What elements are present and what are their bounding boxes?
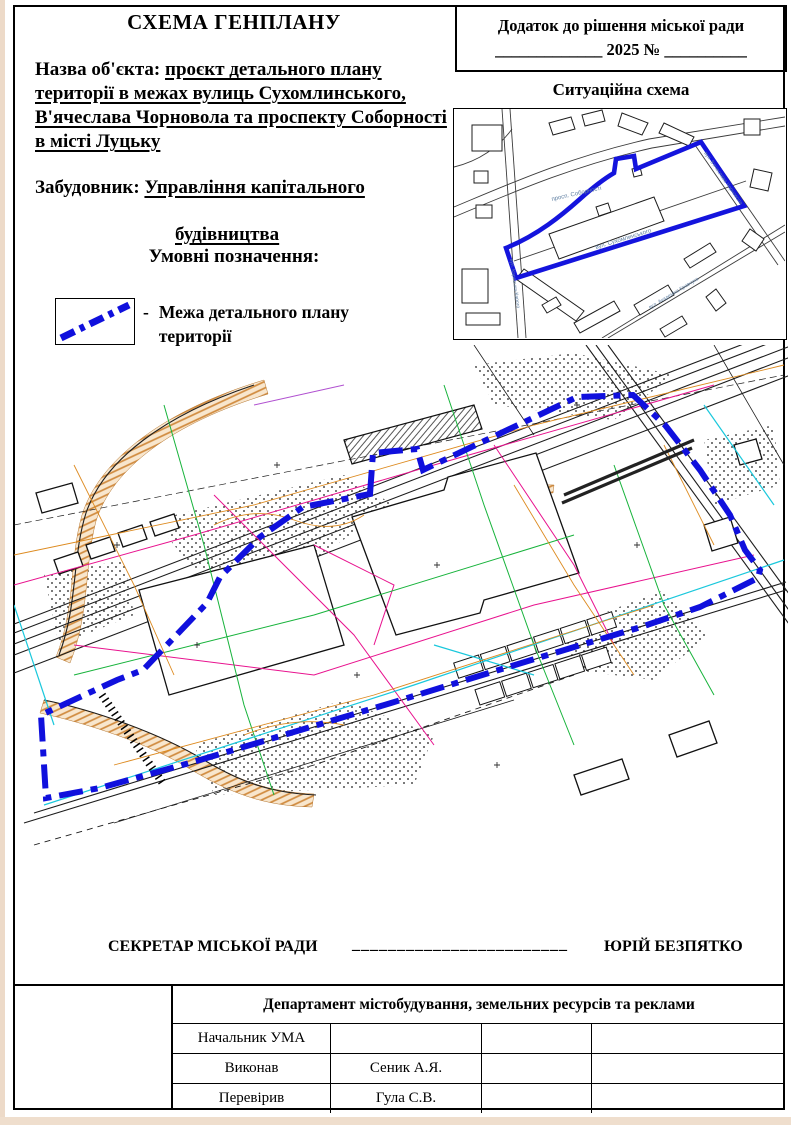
signature-line: ________________________ <box>352 936 568 954</box>
legend-swatch <box>55 298 135 345</box>
empty-cell <box>482 1084 592 1113</box>
scan-edge-left <box>0 0 5 1125</box>
name-cell: Сеник А.Я. <box>331 1054 482 1083</box>
name-cell <box>331 1024 482 1053</box>
annex-line-1: Додаток до рішення міської ради <box>457 14 785 38</box>
role-cell: Начальник УМА <box>173 1024 331 1053</box>
map-dark-road-bars <box>562 440 694 503</box>
annex-line-2: _____________ 2025 № __________ <box>457 38 785 62</box>
annex-note-box: Додаток до рішення міської ради ________… <box>455 5 787 72</box>
approval-table: Департамент містобудування, земельних ре… <box>13 984 785 1110</box>
legend-item: - Межа детального плану території <box>143 301 403 348</box>
developer-paragraph: Забудовник: Управління капітального <box>35 176 457 200</box>
name-cell: Гула С.В. <box>331 1084 482 1113</box>
empty-cell <box>592 1084 785 1113</box>
main-map-drawing <box>14 345 788 917</box>
situation-map-box: просп. Соборності вул. Сухомлинського ву… <box>453 108 787 340</box>
object-name-paragraph: Назва об'єкта: проєкт детального плану т… <box>35 58 457 155</box>
role-cell: Перевірив <box>173 1084 331 1113</box>
table-row: Начальник УМА <box>173 1024 785 1054</box>
situation-map-drawing: просп. Соборності вул. Сухомлинського ву… <box>454 109 785 338</box>
street-label-karpenka-karoho: вул. Карпенка-Карого <box>508 258 521 308</box>
situation-map-title: Ситуаційна схема <box>455 80 787 100</box>
legend-item-label: Межа детального плану території <box>159 301 403 348</box>
department-header: Департамент містобудування, земельних ре… <box>173 986 785 1024</box>
boundary-line-sample <box>56 299 133 343</box>
legend-title: Умовні позначення: <box>14 246 454 268</box>
approval-table-empty-cell <box>13 986 173 1110</box>
signature-name: ЮРІЙ БЕЗПЯТКО <box>604 938 743 956</box>
signature-role: СЕКРЕТАР МІСЬКОЇ РАДИ <box>108 938 318 956</box>
empty-cell <box>592 1024 785 1053</box>
empty-cell <box>592 1054 785 1083</box>
sitmap-buildings <box>462 110 772 337</box>
object-name-label: Назва об'єкта: <box>35 59 160 80</box>
table-row: Перевірив Гула С.В. <box>173 1084 785 1113</box>
role-cell: Виконав <box>173 1054 331 1083</box>
page-title: СХЕМА ГЕНПЛАНУ <box>14 10 454 35</box>
developer-value-line-1: Управління капітального <box>144 177 364 198</box>
table-row: Виконав Сеник А.Я. <box>173 1054 785 1084</box>
developer-label: Забудовник: <box>35 177 140 198</box>
empty-cell <box>482 1024 592 1053</box>
legend-bullet: - <box>143 301 149 348</box>
legend-dash-dot-line <box>61 305 129 338</box>
empty-cell <box>482 1054 592 1083</box>
street-label-chornovola: вул. В'ячеслава Чорновола <box>702 151 743 207</box>
scan-edge-bottom <box>0 1117 791 1125</box>
developer-value-line-2: будівництва <box>175 224 279 246</box>
page-root: { "document": { "title": "СХЕМА ГЕНПЛАНУ… <box>0 0 791 1125</box>
